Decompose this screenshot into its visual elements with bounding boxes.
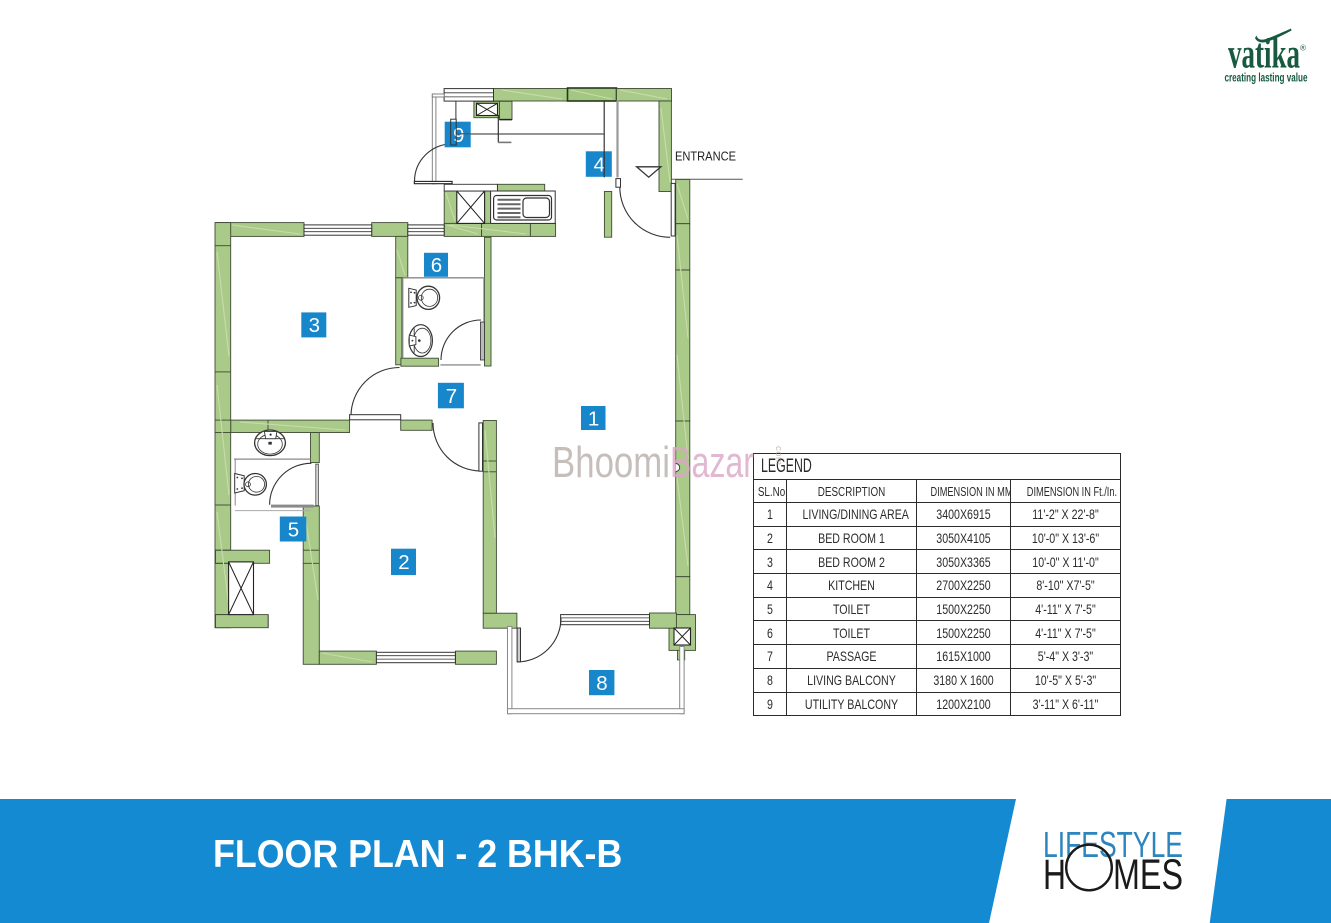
svg-text:com: com	[773, 446, 784, 465]
svg-text:MES: MES	[1113, 851, 1183, 899]
svg-text:®: ®	[1300, 44, 1306, 53]
svg-text:8: 8	[596, 672, 607, 695]
svg-text:7: 7	[446, 385, 457, 408]
svg-text:9: 9	[453, 124, 464, 147]
svg-text:5: 5	[288, 518, 299, 541]
svg-text:creating lasting value: creating lasting value	[1225, 73, 1308, 85]
svg-text:6: 6	[431, 254, 442, 277]
svg-text:4: 4	[594, 153, 605, 176]
svg-text:Bazar: Bazar	[670, 438, 754, 487]
svg-text:3: 3	[309, 314, 320, 337]
svg-text:1: 1	[588, 407, 599, 430]
svg-text:Bhoomi: Bhoomi	[552, 438, 670, 487]
svg-text:2: 2	[398, 551, 409, 574]
svg-text:vatika: vatika	[1228, 32, 1300, 78]
svg-text:ENTRANCE: ENTRANCE	[675, 150, 736, 164]
svg-text:H: H	[1043, 851, 1066, 899]
